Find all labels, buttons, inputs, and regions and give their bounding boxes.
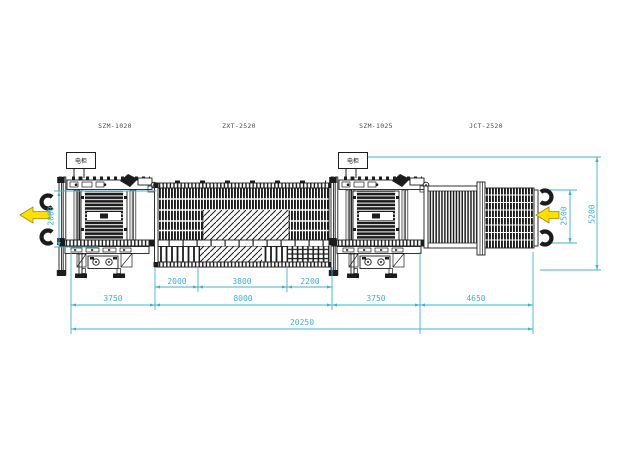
dim-total-height: 5200 [588, 192, 597, 236]
clamp-icon [541, 191, 552, 204]
label-machine-szm-1020: SZM-1020 [85, 122, 145, 130]
dim-seg-2200: 2200 [280, 278, 340, 286]
clamp-icon [541, 232, 552, 245]
conveyor-jct-2520 [424, 182, 538, 255]
dim-seg-3800: 3800 [212, 278, 272, 286]
cabinet-callout-left: 电柜 [66, 152, 96, 169]
machine-szm-1020 [57, 168, 157, 278]
dim-mid-span: 8000 [213, 295, 273, 303]
label-machine-szm-1025: SZM-1025 [346, 122, 406, 130]
conveyor-zxt-2520 [154, 181, 334, 268]
dim-seg-2000: 2000 [147, 278, 207, 286]
machine-szm-1025 [329, 168, 429, 278]
dim-left-span: 3750 [83, 295, 143, 303]
drawing-canvas [0, 0, 630, 465]
cad-layout-drawing: SZM-1020 ZXT-2520 SZM-1025 JCT-2520 电柜 电… [0, 0, 630, 465]
dim-right-height: 2500 [560, 194, 569, 238]
dim-left-height: 2000 [47, 194, 56, 238]
cabinet-callout-mid: 电柜 [338, 152, 368, 169]
label-conveyor-zxt-2520: ZXT-2520 [209, 122, 269, 130]
label-conveyor-jct-2520: JCT-2520 [456, 122, 516, 130]
dim-far-right-span: 4650 [446, 295, 506, 303]
dim-total-length: 20250 [272, 319, 332, 327]
dim-right-span: 3750 [346, 295, 406, 303]
flow-arrow-right-icon [536, 207, 559, 223]
